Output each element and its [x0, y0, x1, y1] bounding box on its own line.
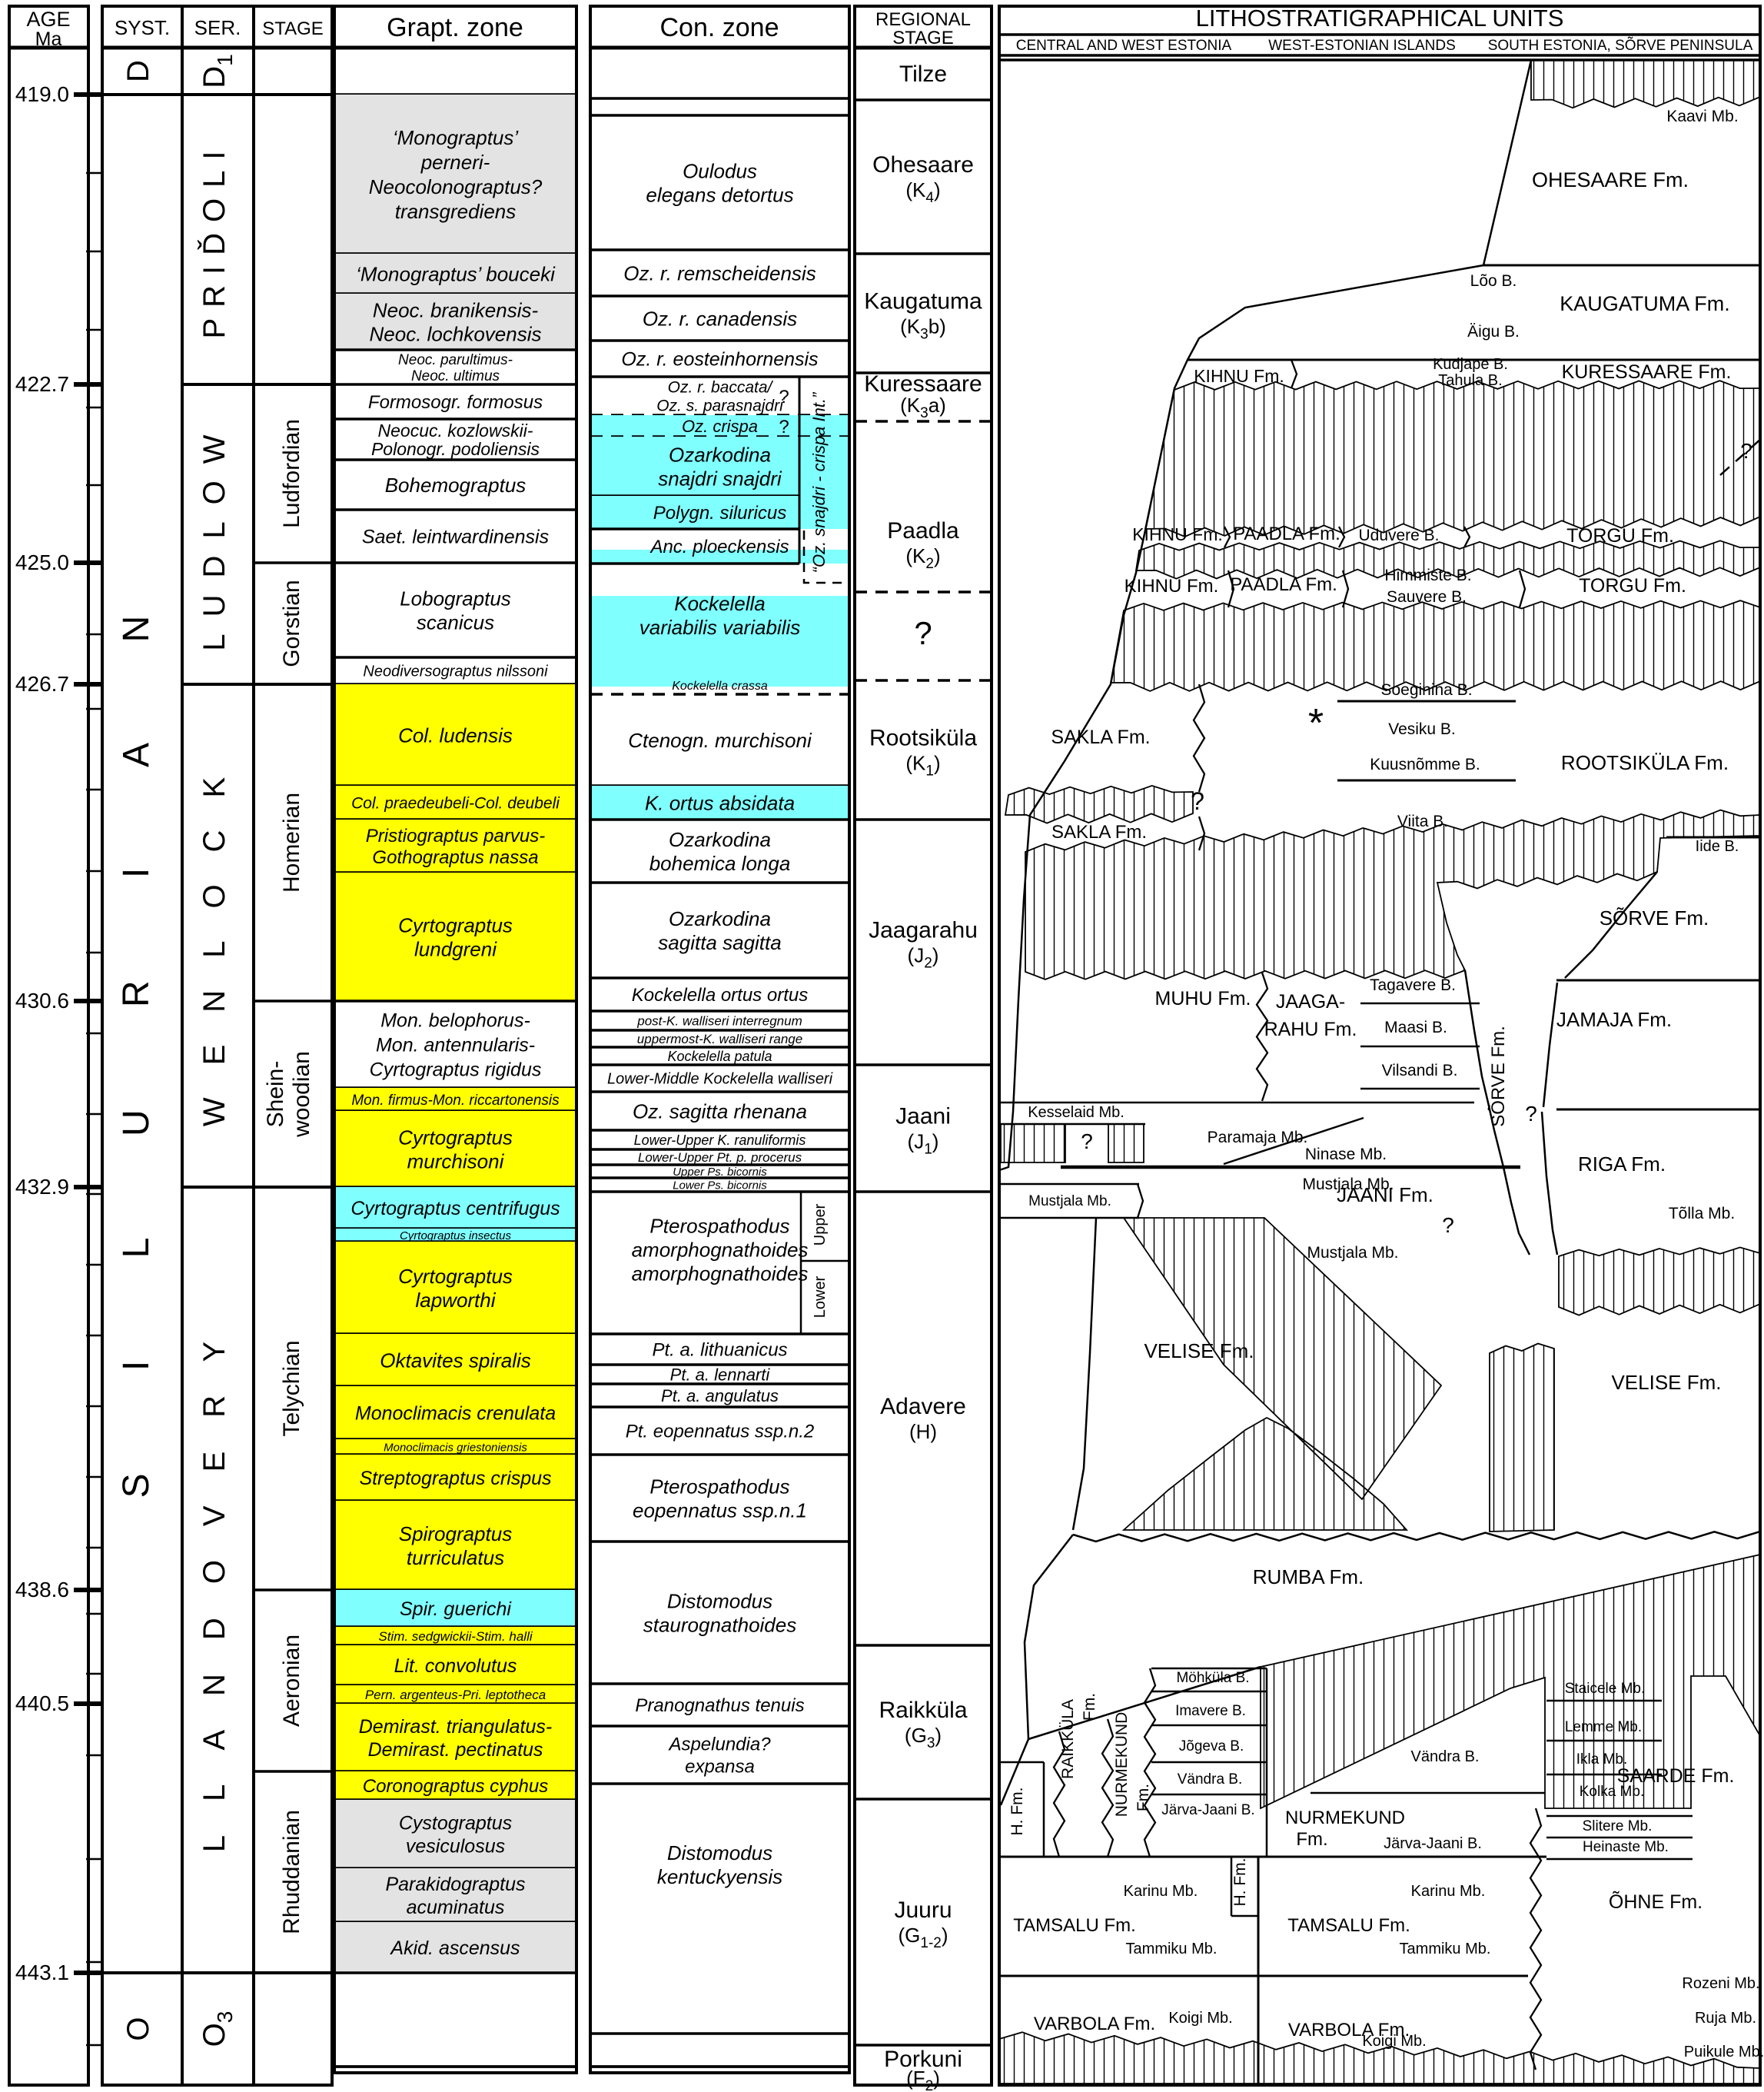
- lith-region-1: CENTRAL AND WEST ESTONIA: [1016, 38, 1232, 54]
- lith-unit-label: KAUGATUMA Fm.: [1560, 292, 1730, 315]
- age-header-line2: Ma: [35, 28, 62, 50]
- series-label: O3: [198, 2011, 237, 2047]
- lith-unit-label: Karinu Mb.: [1124, 1883, 1198, 1900]
- lith-unit-label: VELISE Fm.: [1611, 1371, 1721, 1394]
- question-mark: ?: [1081, 1129, 1093, 1153]
- stage-label: Rhuddanian: [279, 1810, 304, 1934]
- lith-unit-label: TAMSALU Fm.: [1013, 1915, 1136, 1936]
- grapt-zone-label: Demirast. pectinatus: [368, 1739, 543, 1761]
- hiatus-band: [1559, 1247, 1760, 1315]
- con-zone-label: Oz. s. parasnajdri: [656, 397, 784, 415]
- lith-unit-label: JAAGA-: [1276, 991, 1345, 1013]
- series-label: WENLOCK: [198, 745, 231, 1126]
- jagged-formation-divider: [1138, 1184, 1143, 1218]
- lith-unit-label: JAMAJA Fm.: [1556, 1008, 1672, 1031]
- stage-header: STAGE: [262, 18, 324, 39]
- grapt-zone-label: Coronograptus cyphus: [363, 1776, 548, 1797]
- lith-unit-label: Imavere B.: [1175, 1703, 1246, 1719]
- con-zone-label: staurognathoides: [643, 1613, 796, 1636]
- age-major-label: 426.7: [15, 672, 69, 696]
- age-major-label: 443.1: [15, 1961, 69, 1984]
- con-zone-label: sagitta sagitta: [658, 931, 781, 954]
- series-label: LLANDOVERY: [198, 1308, 231, 1852]
- lith-unit-label: Iide B.: [1696, 838, 1739, 855]
- con-zone-label: expansa: [685, 1757, 755, 1778]
- con-zone-label: kentuckyensis: [657, 1865, 782, 1888]
- grapt-zone-label: Neodiversograptus nilssoni: [363, 664, 548, 680]
- lith-unit-label: Mustjala Mb.: [1028, 1193, 1111, 1209]
- question-mark: ?: [1740, 439, 1752, 463]
- lith-unit-label: KIHNU Fm.: [1194, 366, 1284, 386]
- series-label: LUDLOW: [198, 417, 231, 650]
- lith-unit-label: Heinaste Mb.: [1583, 1839, 1669, 1855]
- lith-unit-label: Ruja Mb.: [1695, 2010, 1756, 2027]
- grapt-zone-label: Lit. convolutus: [394, 1655, 517, 1677]
- question-mark: ?: [1442, 1213, 1454, 1237]
- age-column-frame: [9, 6, 88, 2085]
- strata-margin-curve: [1073, 1218, 1096, 1530]
- regional-stage-column: TilzeOhesaare(K4)Kaugatuma(K3b)Kuressaar…: [855, 62, 992, 2092]
- grapt-zone-label: Lobograptus: [400, 587, 511, 610]
- lith-unit-label: OHESAARE Fm.: [1532, 168, 1689, 191]
- grapt-zone-label: turriculatus: [407, 1546, 504, 1569]
- grapt-zone-label: Mon. firmus-Mon. riccartonensis: [351, 1093, 560, 1109]
- regional-stage-code: (G1-2): [898, 1924, 948, 1951]
- lith-unit-label: Tagavere B.: [1370, 976, 1456, 994]
- regional-stage-code: (J2): [908, 944, 939, 972]
- regional-stage-code: (J1): [908, 1130, 939, 1158]
- system-label: D: [121, 60, 155, 82]
- hiatus-band: [1531, 60, 1760, 108]
- system-series-stage-columns: DS I L U R I A NOD1PRIĎOLILUDLOWWENLOCKL…: [102, 54, 332, 2047]
- con-zone-label: Anc. ploeckensis: [649, 537, 789, 557]
- lith-unit-label: Tammiku Mb.: [1400, 1941, 1491, 1957]
- lith-unit-label: NURMEKUND: [1113, 1712, 1131, 1818]
- graptolite-zone-column: ‘Monograptus’perneri-Neocolonograptus?tr…: [334, 95, 576, 2067]
- lith-unit-label: Tõlla Mb.: [1669, 1205, 1735, 1222]
- con-zone-label: Ozarkodina: [669, 828, 771, 851]
- asterisk-marker: *: [1308, 701, 1324, 746]
- stage-label: Ludfordian: [279, 419, 304, 528]
- lith-unit-label: TORGU Fm.: [1566, 525, 1674, 547]
- con-zone-label: Oz. r. remscheidensis: [623, 261, 816, 284]
- con-zone-label: Upper Ps. bicornis: [673, 1166, 767, 1179]
- lith-unit-label: SAARDE Fm.: [1617, 1765, 1735, 1787]
- grapt-zone-label: Saet. leintwardinensis: [362, 527, 549, 548]
- grapt-zone-label: ‘Monograptus’: [393, 126, 520, 149]
- upper-label: Upper: [812, 1203, 829, 1246]
- age-major-label: 419.0: [15, 82, 69, 106]
- regional-stage-name: ?: [914, 615, 932, 651]
- lith-unit-label: Möhküla B.: [1176, 1670, 1249, 1686]
- regional-stage-name: Kuressaare: [864, 371, 982, 397]
- lith-unit-label: KURESSAARE Fm.: [1562, 361, 1732, 383]
- con-zone-label: amorphognathoides: [632, 1262, 809, 1285]
- regional-stage-code: (K1): [905, 752, 940, 780]
- regional-stage-name: Rootsiküla: [869, 726, 977, 751]
- con-zone-label: Lower-Upper Pt. p. procerus: [638, 1150, 802, 1165]
- grapt-zone-label: Neocolonograptus?: [369, 175, 543, 198]
- con-zone-label: amorphognathoides: [632, 1238, 809, 1261]
- lith-region-3: SOUTH ESTONIA, SÕRVE PENINSULA: [1488, 37, 1753, 54]
- stage-label: Aeronian: [279, 1635, 304, 1727]
- con-zone-label: uppermost-K. walliseri range: [637, 1032, 802, 1046]
- grapt-zone-label: Col. praedeubeli-Col. deubeli: [351, 795, 560, 813]
- lith-unit-label: PAADLA Fm.: [1233, 524, 1340, 544]
- lith-unit-label: H. Fm.: [1231, 1858, 1249, 1907]
- lith-unit-label: Maasi B.: [1384, 1019, 1447, 1036]
- stage-label: Homerian: [279, 793, 304, 893]
- con-zone-label: Oulodus: [683, 159, 757, 182]
- grapt-zone-label: scanicus: [417, 610, 494, 634]
- regional-stage-name: Ohesaare: [872, 152, 974, 178]
- regional-stage-code: (K3b): [900, 315, 946, 343]
- lith-unit-label: SAKLA Fm.: [1051, 822, 1147, 843]
- hiatus-band: [1145, 381, 1760, 537]
- lith-unit-label: Tahula B.: [1438, 372, 1502, 389]
- con-zone-label: Oz. sagitta rhenana: [633, 1099, 807, 1122]
- lith-title: LITHOSTRATIGRAPHICAL UNITS: [1196, 5, 1564, 32]
- con-zone-label: Pt. a. lennarti: [670, 1365, 771, 1384]
- con-zone-label: Lower-Middle Kockelella walliseri: [607, 1071, 833, 1088]
- con-zone-label: bohemica longa: [649, 852, 791, 875]
- lith-unit-label: Lõo B.: [1470, 272, 1517, 290]
- grapt-zone-label: Col. ludensis: [398, 723, 513, 747]
- lith-unit-label: Mustjala Mb.: [1307, 1244, 1398, 1262]
- jagged-formation-divider: [1530, 1808, 1541, 2070]
- erosion-zigzag-line: [1073, 1532, 1760, 1542]
- grapt-zone-label: Neoc. lochkovensis: [370, 322, 542, 345]
- regional-stage-name: Kaugatuma: [864, 289, 982, 314]
- lith-unit-label: Järva-Jaani B.: [1384, 1835, 1482, 1852]
- series-label: PRIĎOLI: [197, 140, 231, 338]
- regional-stage-name: Jaani: [895, 1104, 951, 1129]
- lith-unit-label: Soeginina B.: [1380, 681, 1472, 699]
- series-label: D1: [198, 54, 237, 88]
- lith-unit-label: MUHU Fm.: [1155, 988, 1251, 1009]
- grapt-zone-label: Monoclimacis griestoniensis: [384, 1441, 527, 1454]
- grapt-zone-label: Cyrtograptus: [398, 1265, 513, 1288]
- con-zone-label: eopennatus ssp.n.1: [633, 1498, 807, 1522]
- stage-label: Telychian: [279, 1340, 304, 1436]
- regional-stage-code: (K3a): [900, 394, 946, 421]
- con-zone-label: Pranognathus tenuis: [635, 1695, 804, 1716]
- grapt-zone-label: Pristiograptus parvus-: [366, 826, 545, 846]
- regional-stage-code: (H): [909, 1420, 937, 1443]
- interval-label: “Oz. snajdri - crispa Int.”: [809, 391, 829, 573]
- grapt-zone-label: transgrediens: [395, 200, 517, 223]
- con-zone-label: Distomodus: [667, 1841, 772, 1864]
- grapt-zone-label: vesiculosus: [406, 1836, 505, 1858]
- grapt-zone-label: Cyrtograptus: [398, 913, 513, 936]
- grapt-zone-label: murchisoni: [407, 1149, 505, 1172]
- con-header: Con. zone: [660, 13, 779, 42]
- lith-unit-label: Viita B.: [1397, 813, 1448, 830]
- regional-header-line1: REGIONAL: [875, 9, 971, 30]
- lith-unit-label: RAIKKÜLA: [1059, 1699, 1077, 1779]
- grapt-zone-label: Cyrtograptus: [398, 1126, 513, 1149]
- regional-stage-code: (F2): [906, 2067, 940, 2092]
- lith-unit-label: Vilsandi B.: [1382, 1062, 1458, 1079]
- jagged-formation-divider: [1291, 360, 1297, 388]
- chart-canvas: ‘Monograptus’perneri-Neocolonograptus?tr…: [0, 0, 1764, 2092]
- con-zone-label: Kockelella patula: [667, 1049, 772, 1064]
- regional-stage-code: (K2): [905, 544, 940, 572]
- con-zone-sublabel: Kockelella crassa: [672, 680, 768, 693]
- hiatus-band: [1490, 1344, 1554, 1532]
- lith-unit-label: VARBOLA Fm.: [1034, 2014, 1155, 2034]
- lith-unit-label: Lemme Mb.: [1565, 1719, 1642, 1735]
- lith-unit-label: Kaavi Mb.: [1666, 108, 1738, 125]
- grapt-zone-label: acuminatus: [407, 1897, 505, 1918]
- hiatus-band: [1005, 786, 1193, 823]
- lith-unit-label: Staicele Mb.: [1565, 1681, 1646, 1697]
- system-label: O: [121, 2017, 155, 2040]
- age-major-label: 422.7: [15, 372, 69, 396]
- lith-unit-label: Vändra B.: [1178, 1771, 1243, 1788]
- question-mark: ?: [1525, 1102, 1537, 1126]
- grapt-zone-box: [334, 1704, 576, 1771]
- grapt-zone-label: Streptograptus crispus: [359, 1468, 551, 1489]
- con-zone-label: Ozarkodina: [669, 443, 771, 466]
- age-major-label: 430.6: [15, 989, 69, 1013]
- lith-unit-label: Äigu B.: [1467, 323, 1520, 341]
- con-zone-label: Pterospathodus: [649, 1214, 789, 1237]
- grapt-zone-label: Formosogr. formosus: [368, 392, 543, 413]
- grapt-zone-label: Cystograptus: [399, 1813, 512, 1834]
- con-zone-label: Oz. r. canadensis: [643, 307, 797, 330]
- con-zone-label: Lower Ps. bicornis: [673, 1179, 767, 1192]
- lith-unit-label: NURMEKUND: [1285, 1808, 1405, 1828]
- con-zone-label: Pterospathodus: [649, 1475, 789, 1498]
- strata-margin-curve: [1542, 1112, 1557, 1255]
- grapt-zone-label: Neoc. parultimus-: [398, 352, 513, 368]
- grapt-zone-label: Cyrtograptus centrifugus: [350, 1198, 560, 1219]
- lith-unit-label: ÕHNE Fm.: [1609, 1891, 1703, 1913]
- lith-unit-label: SAKLA Fm.: [1051, 727, 1150, 748]
- grapt-zone-label: ‘Monograptus’ bouceki: [356, 262, 556, 285]
- syst-header: SYST.: [115, 16, 170, 39]
- con-zone-label: Aspelundia?: [667, 1734, 771, 1755]
- age-major-label: 438.6: [15, 1578, 69, 1601]
- lith-unit-label: JAANI Fm.: [1337, 1183, 1433, 1206]
- grapt-zone-label: Spir. guerichi: [400, 1598, 512, 1620]
- lith-unit-label: Sauvere B.: [1387, 588, 1467, 606]
- regional-stage-name: Tilze: [899, 62, 947, 87]
- hiatus-band: [1108, 1124, 1144, 1162]
- grapt-zone-label: lundgreni: [414, 937, 497, 960]
- ser-header: SER.: [194, 16, 241, 39]
- grapt-zone-label: Cyrtograptus rigidus: [370, 1059, 542, 1081]
- regional-stage-name: Jaagarahu: [869, 918, 978, 943]
- grapt-zone-label: Pern. argenteus-Pri. leptotheca: [365, 1688, 546, 1702]
- lith-unit-label: TAMSALU Fm.: [1287, 1915, 1410, 1936]
- con-zone-label: snajdri snajdri: [658, 467, 782, 490]
- con-zone-label: Kockelella: [674, 592, 766, 615]
- con-zone-label: post-K. walliseri interregnum: [636, 1014, 802, 1029]
- lith-unit-label: RUMBA Fm.: [1253, 1565, 1364, 1588]
- lith-unit-label: VELISE Fm.: [1144, 1339, 1254, 1362]
- strata-margin-curve: [1543, 983, 1557, 1107]
- grapt-zone-label: Spirograptus: [399, 1522, 512, 1545]
- grapt-zone-label: Neoc. branikensis-: [373, 298, 539, 321]
- lith-unit-label: Uduvere B.: [1358, 527, 1439, 544]
- con-zone-label: Polygn. siluricus: [653, 503, 786, 524]
- regional-header-line2: STAGE: [892, 28, 954, 48]
- con-zone-label: Ozarkodina: [669, 907, 771, 930]
- lith-unit-label: Paramaja Mb.: [1208, 1129, 1308, 1146]
- question-mark: ?: [779, 387, 789, 407]
- lith-unit-label: Tammiku Mb.: [1126, 1941, 1218, 1957]
- lower-label: Lower: [812, 1275, 829, 1318]
- lith-unit-label: Järva-Jaani B.: [1161, 1802, 1254, 1818]
- stage-label: Gorstian: [279, 580, 304, 667]
- con-zone-label: Pt. a. angulatus: [661, 1386, 779, 1405]
- lith-unit-label: PAADLA Fm.: [1230, 574, 1337, 595]
- lith-unit-label: Kuusnõmme B.: [1370, 756, 1480, 773]
- regional-stage-name: Adavere: [880, 1394, 966, 1419]
- con-zone-label: elegans detortus: [646, 183, 793, 206]
- jagged-formation-divider: [1520, 570, 1525, 607]
- lith-unit-label: SÕRVE Fm.: [1600, 906, 1709, 930]
- grapt-zone-label: Mon. antennularis-: [376, 1035, 535, 1056]
- lith-unit-label: Vändra B.: [1411, 1748, 1480, 1765]
- regional-stage-name: Raikküla: [879, 1698, 967, 1723]
- lith-unit-label: RIGA Fm.: [1578, 1152, 1666, 1176]
- lith-unit-label: Ninase Mb.: [1305, 1146, 1387, 1163]
- question-mark: ?: [779, 417, 789, 437]
- jagged-formation-divider: [1102, 1719, 1113, 1857]
- grapt-zone-label: Polonogr. podoliensis: [371, 439, 540, 459]
- lith-unit-label: SÕRVE Fm.: [1487, 1026, 1509, 1127]
- lith-unit-label: Kudjape B.: [1433, 356, 1508, 373]
- lith-unit-label: Jõgeva B.: [1179, 1738, 1244, 1754]
- con-zone-label: Pt. a. lithuanicus: [652, 1340, 787, 1361]
- lith-unit-label: KIHNU Fm.: [1125, 576, 1219, 597]
- age-major-label: 432.9: [15, 1175, 69, 1199]
- lith-unit-label: Fm.: [1081, 1693, 1098, 1721]
- grapt-zone-label: Mon. belophorus-: [380, 1010, 530, 1032]
- grapt-zone-label: Monoclimacis crenulata: [355, 1403, 556, 1425]
- con-zone-label: Kockelella ortus ortus: [632, 985, 808, 1006]
- lith-unit-label: Fm.: [1296, 1829, 1327, 1850]
- age-header-line1: AGE: [26, 8, 70, 31]
- con-zone-label: Lower-Upper K. ranuliformis: [634, 1132, 806, 1148]
- grapt-zone-label: Neocuc. kozlowskii-: [378, 421, 533, 441]
- lith-unit-label: Koigi Mb.: [1168, 2010, 1232, 2027]
- age-major-label: 440.5: [15, 1691, 69, 1715]
- con-zone-label: Distomodus: [667, 1589, 772, 1612]
- regional-stage-name: Juuru: [894, 1897, 952, 1923]
- stage-label: Shein-: [263, 1061, 288, 1128]
- lith-unit-label: Koigi Mb.: [1362, 2033, 1426, 2050]
- grapt-zone-label: Neoc. ultimus: [411, 368, 500, 384]
- grapt-zone-box: [334, 95, 576, 254]
- con-zone-label: K. ortus absidata: [645, 791, 795, 814]
- lith-unit-label: Slitere Mb.: [1583, 1818, 1653, 1834]
- grapt-header: Grapt. zone: [387, 13, 523, 42]
- question-mark: ?: [1191, 787, 1204, 815]
- strata-margin-curve: [1503, 1167, 1530, 1255]
- lith-unit-label: RAHU Fm.: [1264, 1019, 1357, 1040]
- con-zone-label: Oz. r. eosteinhornensis: [621, 349, 818, 371]
- age-major-label: 425.0: [15, 550, 69, 574]
- lith-unit-label: Vesiku B.: [1388, 720, 1456, 738]
- grapt-zone-label: Cyrtograptus insectus: [400, 1229, 512, 1242]
- con-zone-label: Oz. crispa: [682, 417, 758, 436]
- grapt-zone-label: lapworthi: [415, 1289, 496, 1312]
- regional-stage-code: (G3): [905, 1724, 942, 1751]
- lith-unit-label: Kesselaid Mb.: [1028, 1104, 1125, 1121]
- con-zone-label: Oz. r. baccata/: [668, 379, 774, 397]
- lith-unit-label: TORGU Fm.: [1579, 575, 1686, 597]
- grapt-zone-label: Parakidograptus: [385, 1874, 525, 1895]
- con-zone-label: Ctenogn. murchisoni: [628, 729, 812, 752]
- jagged-formation-divider: [1343, 570, 1348, 607]
- grapt-zone-label: Oktavites spiralis: [380, 1349, 531, 1372]
- lith-unit-label: Puikule Mb.: [1684, 2044, 1764, 2060]
- con-zone-label: variabilis variabilis: [639, 616, 801, 639]
- stage-label: woodian: [289, 1051, 314, 1138]
- con-zone-label: Pt. eopennatus ssp.n.2: [626, 1422, 815, 1442]
- grapt-zone-label: Gothograptus nassa: [372, 847, 538, 868]
- system-label: S I L U R I A N: [116, 570, 157, 1498]
- hiatus-band: [1111, 600, 1760, 691]
- lith-unit-label: Fm.: [1134, 1784, 1152, 1811]
- lith-unit-label: Rozeni Mb.: [1682, 1975, 1759, 1992]
- grapt-zone-label: Akid. ascensus: [389, 1937, 520, 1959]
- regional-stage-code: (K4): [905, 178, 940, 206]
- regional-stage-name: Paadla: [887, 518, 959, 544]
- grapt-zone-label: perneri-: [420, 151, 490, 174]
- lith-unit-label: ROOTSIKÜLA Fm.: [1561, 751, 1729, 774]
- grapt-zone-box: [334, 1800, 576, 1868]
- stage-column-frame: [254, 6, 332, 2085]
- grapt-zone-label: Stim. sedgwickii-Stim. halli: [378, 1629, 533, 1644]
- lith-unit-label: Himmiste B.: [1384, 567, 1471, 584]
- jagged-formation-divider: [1194, 684, 1204, 792]
- lith-region-2: WEST-ESTONIAN ISLANDS: [1268, 38, 1456, 54]
- lith-unit-label: H. Fm.: [1008, 1788, 1026, 1836]
- lith-unit-label: Karinu Mb.: [1411, 1883, 1486, 1900]
- grapt-zone-label: Demirast. triangulatus-: [359, 1716, 552, 1738]
- lith-unit-label: KIHNU Fm.: [1132, 524, 1223, 544]
- grapt-zone-label: Bohemograptus: [385, 474, 527, 497]
- regional-column-frame: [855, 6, 992, 2085]
- stratigraphic-correlation-chart: ‘Monograptus’perneri-Neocolonograptus?tr…: [0, 0, 1764, 2092]
